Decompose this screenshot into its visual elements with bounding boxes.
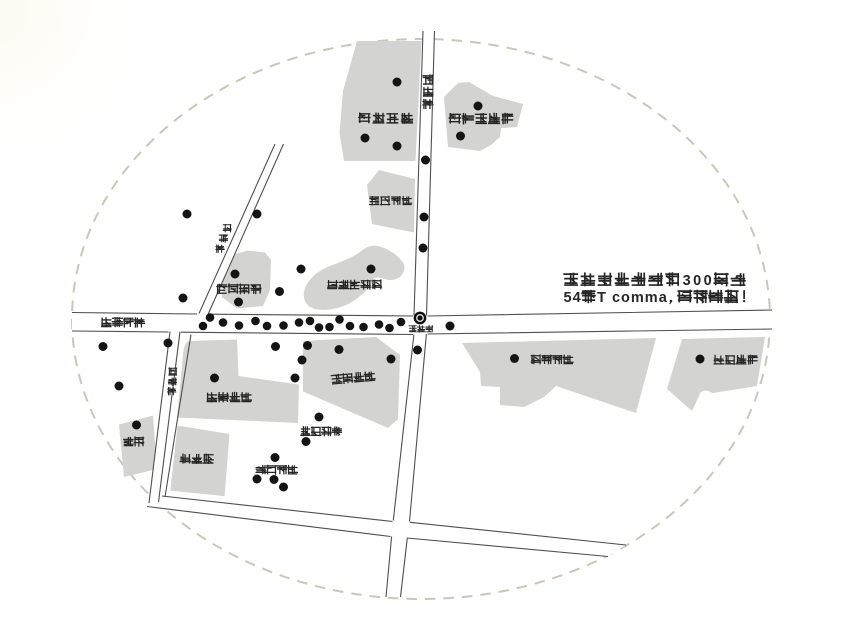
svg-text:300: 300 (683, 273, 715, 289)
svg-text:54: 54 (564, 290, 582, 306)
svg-text:T comma: T comma (597, 290, 668, 306)
